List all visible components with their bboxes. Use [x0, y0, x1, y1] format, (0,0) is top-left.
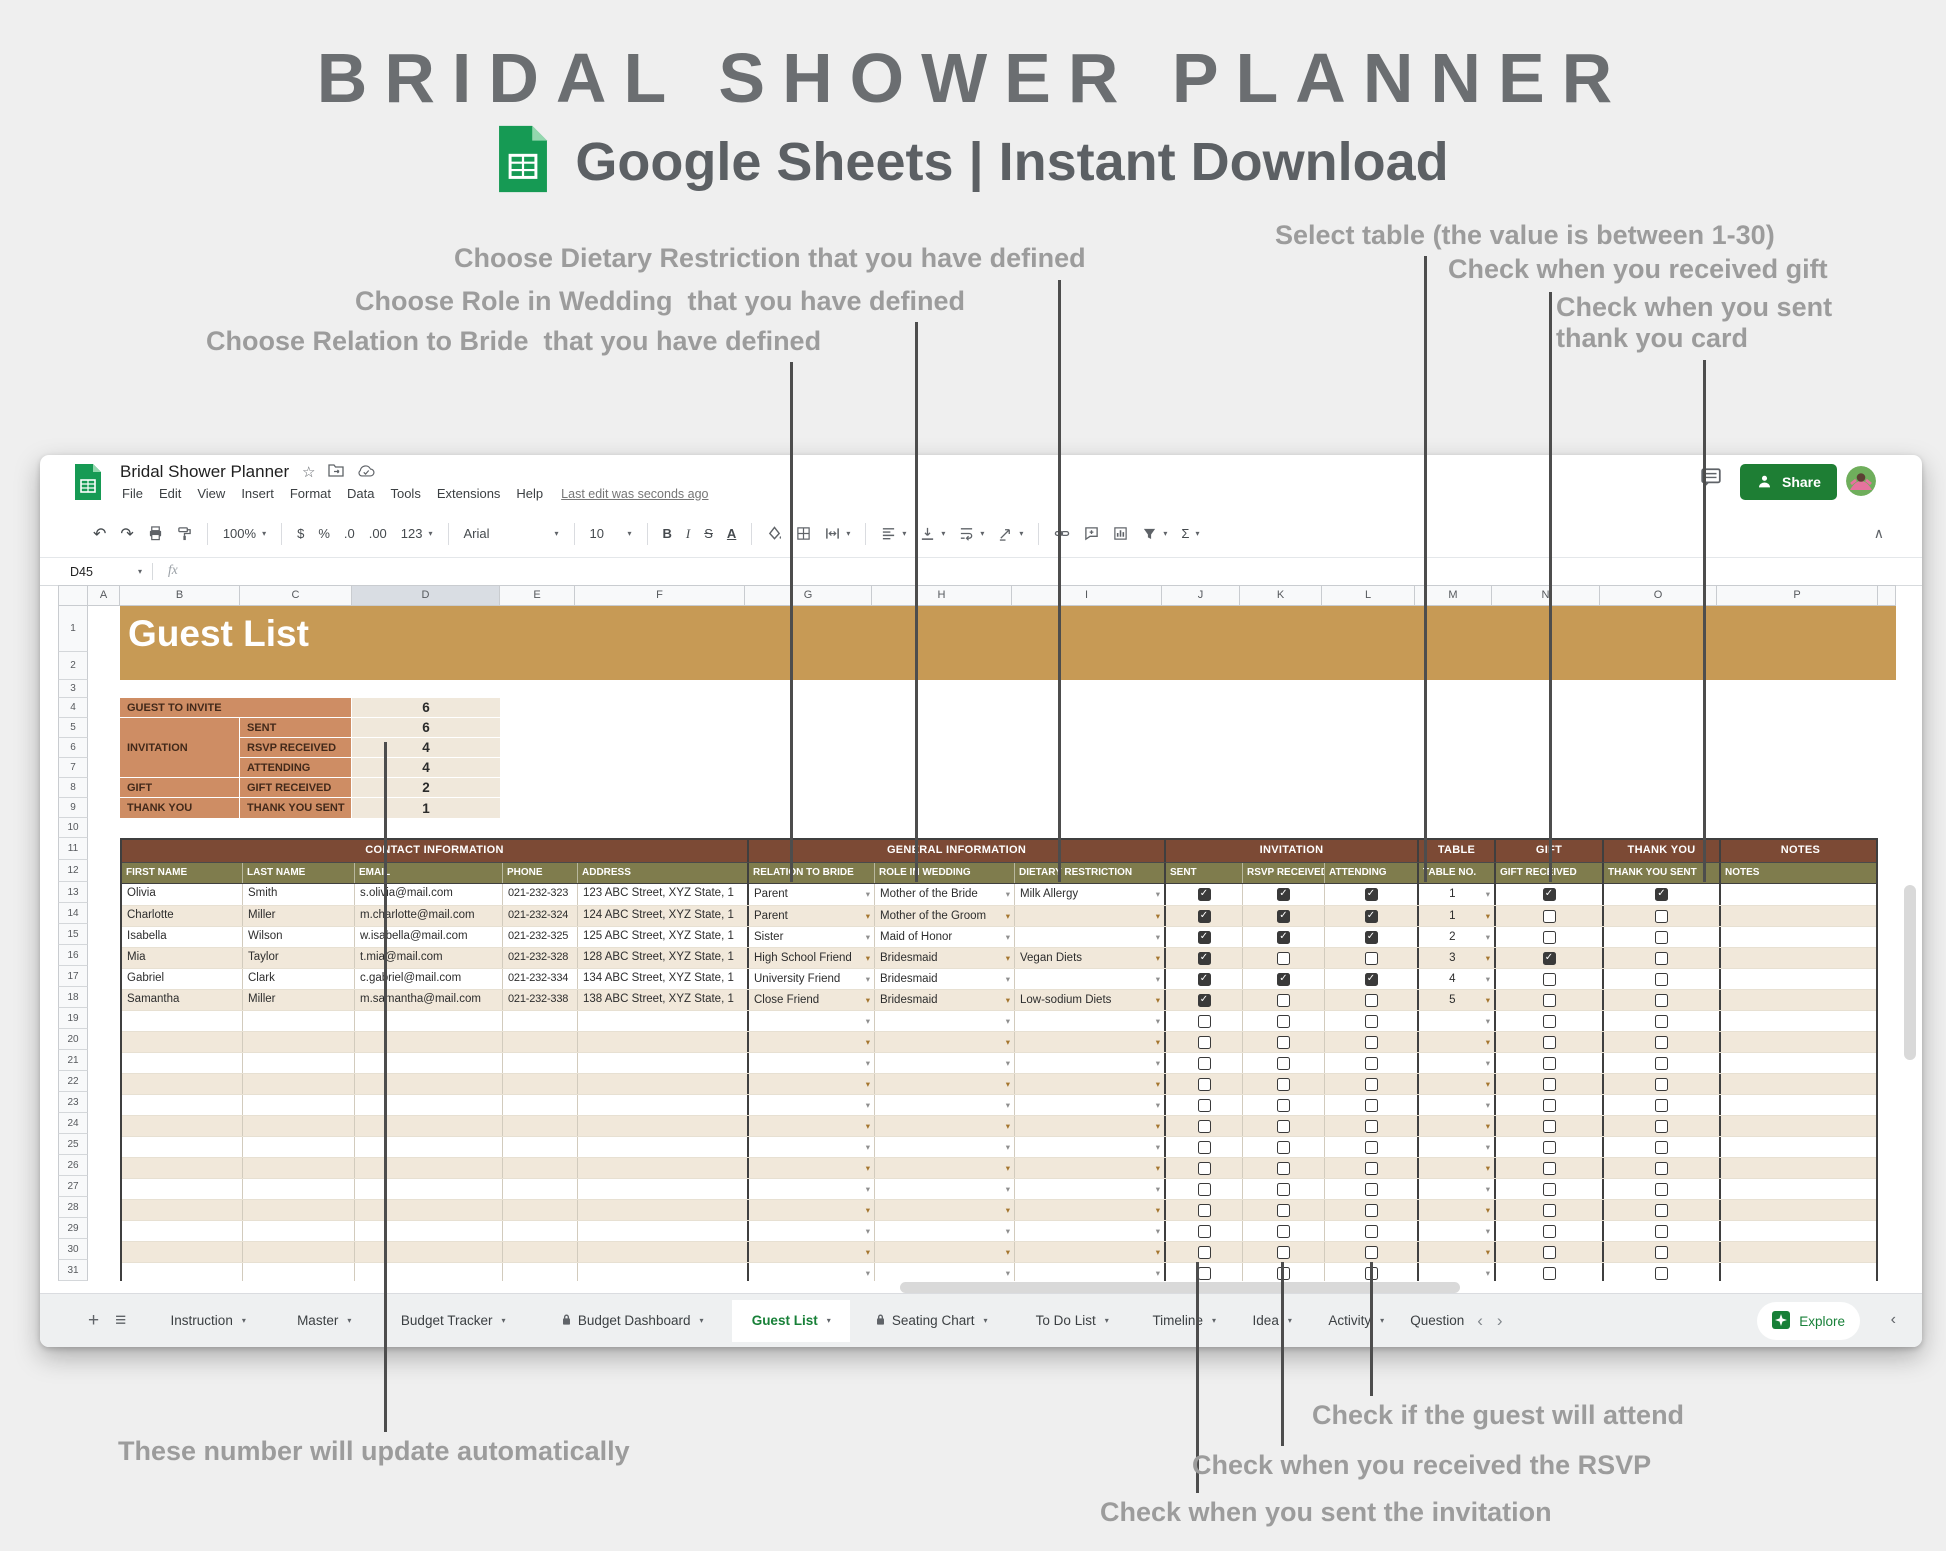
cell-sent[interactable]: [1164, 1053, 1242, 1073]
menu-item-data[interactable]: Data: [339, 484, 382, 503]
checkbox-sent[interactable]: [1198, 1120, 1211, 1133]
cell-phone[interactable]: 021-232-328: [502, 948, 577, 968]
checkbox-attending[interactable]: [1365, 994, 1378, 1007]
cell-attending[interactable]: [1324, 1158, 1417, 1178]
cell-rsvp-received[interactable]: [1242, 1158, 1324, 1178]
cell-first-name[interactable]: Charlotte: [122, 906, 242, 926]
cell-thank-you-sent[interactable]: [1602, 1242, 1719, 1262]
cell-thank-you-sent[interactable]: [1602, 1200, 1719, 1220]
column-header-A[interactable]: A: [88, 585, 120, 606]
cell-first-name[interactable]: [122, 1032, 242, 1052]
cell-role-in-wedding[interactable]: ▾: [874, 1095, 1014, 1115]
row-header-9[interactable]: 9: [58, 798, 88, 818]
horizontal-scrollbar[interactable]: [900, 1282, 1460, 1293]
cell-last-name[interactable]: Smith: [242, 884, 354, 905]
row-header-21[interactable]: 21: [58, 1050, 88, 1071]
menu-item-help[interactable]: Help: [508, 484, 551, 503]
cell-thank-you-sent[interactable]: [1602, 1032, 1719, 1052]
checkbox-thank-you-sent[interactable]: [1655, 1225, 1668, 1238]
cell-role-in-wedding[interactable]: ▾: [874, 1011, 1014, 1031]
cell-first-name[interactable]: [122, 1095, 242, 1115]
checkbox-sent[interactable]: [1198, 1078, 1211, 1091]
cell-attending[interactable]: ✓: [1324, 927, 1417, 947]
cell-sent[interactable]: [1164, 1137, 1242, 1157]
cell-sent[interactable]: ✓: [1164, 948, 1242, 968]
cell-sent[interactable]: ✓: [1164, 927, 1242, 947]
checkbox-rsvp-received[interactable]: [1277, 1183, 1290, 1196]
cell-last-name[interactable]: [242, 1116, 354, 1136]
cell-sent[interactable]: [1164, 1179, 1242, 1199]
cell-email[interactable]: [354, 1242, 502, 1262]
cell-address[interactable]: 138 ABC Street, XYZ State, 1: [577, 990, 747, 1010]
font-size-select[interactable]: 10▾: [590, 526, 632, 541]
row-header-19[interactable]: 19: [58, 1008, 88, 1029]
cell-table-no[interactable]: 1▾: [1417, 884, 1494, 905]
dropdown-arrow-icon[interactable]: ▾: [1156, 907, 1160, 926]
dropdown-arrow-icon[interactable]: ▾: [1156, 1075, 1160, 1094]
dropdown-arrow-icon[interactable]: ▾: [1156, 949, 1160, 968]
dropdown-arrow-icon[interactable]: ▾: [1156, 1243, 1160, 1262]
row-header-23[interactable]: 23: [58, 1092, 88, 1113]
grid-corner[interactable]: [58, 585, 88, 606]
checkbox-thank-you-sent[interactable]: [1655, 1036, 1668, 1049]
checkbox-gift-received[interactable]: [1543, 973, 1556, 986]
cell-dietary-restriction[interactable]: ▾: [1014, 1263, 1164, 1281]
cell-rsvp-received[interactable]: [1242, 1095, 1324, 1115]
summary-metric[interactable]: ATTENDING: [240, 758, 352, 778]
summary-value[interactable]: 4: [352, 738, 501, 758]
column-header-I[interactable]: I: [1012, 585, 1162, 606]
cell-gift-received[interactable]: [1494, 1221, 1602, 1241]
cell-thank-you-sent[interactable]: [1602, 969, 1719, 989]
dropdown-arrow-icon[interactable]: ▾: [1486, 1012, 1490, 1031]
row-header-1[interactable]: 1: [58, 606, 88, 652]
cell-relation-to-bride[interactable]: Parent▾: [747, 884, 874, 905]
cell-table-no[interactable]: ▾: [1417, 1074, 1494, 1094]
all-sheets-button[interactable]: ≡: [115, 1310, 126, 1332]
checkbox-attending[interactable]: [1365, 1162, 1378, 1175]
row-header-29[interactable]: 29: [58, 1218, 88, 1239]
cell-notes[interactable]: [1719, 1200, 1876, 1220]
checkbox-gift-received[interactable]: [1543, 1183, 1556, 1196]
cell-relation-to-bride[interactable]: ▾: [747, 1074, 874, 1094]
cell-phone[interactable]: 021-232-323: [502, 884, 577, 905]
cell-address[interactable]: [577, 1242, 747, 1262]
checkbox-sent[interactable]: [1198, 1057, 1211, 1070]
cell-rsvp-received[interactable]: [1242, 1221, 1324, 1241]
cell-last-name[interactable]: [242, 1011, 354, 1031]
cell-notes[interactable]: [1719, 1158, 1876, 1178]
cell-address[interactable]: 134 ABC Street, XYZ State, 1: [577, 969, 747, 989]
cell-phone[interactable]: [502, 1221, 577, 1241]
dropdown-arrow-icon[interactable]: ▾: [1156, 928, 1160, 947]
cell-table-no[interactable]: 5▾: [1417, 990, 1494, 1010]
row-header-22[interactable]: 22: [58, 1071, 88, 1092]
cell-last-name[interactable]: Miller: [242, 906, 354, 926]
cell-relation-to-bride[interactable]: ▾: [747, 1095, 874, 1115]
cell-sent[interactable]: [1164, 1116, 1242, 1136]
row-header-15[interactable]: 15: [58, 924, 88, 945]
dropdown-arrow-icon[interactable]: ▾: [1006, 1180, 1010, 1199]
dropdown-arrow-icon[interactable]: ▾: [866, 1075, 870, 1094]
row-header-14[interactable]: 14: [58, 903, 88, 924]
row-header-5[interactable]: 5: [58, 718, 88, 738]
checkbox-attending[interactable]: [1365, 1120, 1378, 1133]
cell-thank-you-sent[interactable]: [1602, 906, 1719, 926]
tab-menu-arrow-icon[interactable]: ▾: [1212, 1316, 1216, 1325]
tabs-scroll-right-icon[interactable]: ›: [1497, 1311, 1503, 1331]
cell-relation-to-bride[interactable]: ▾: [747, 1263, 874, 1281]
checkbox-attending[interactable]: [1365, 952, 1378, 965]
column-header-last-name[interactable]: LAST NAME: [242, 863, 354, 883]
checkbox-sent[interactable]: [1198, 1246, 1211, 1259]
column-header-N[interactable]: N: [1492, 585, 1600, 606]
column-header-D[interactable]: D: [352, 585, 500, 606]
group-header-contact-information[interactable]: CONTACT INFORMATION: [122, 840, 747, 862]
tab-activity[interactable]: Activity▾: [1308, 1300, 1404, 1342]
cell-attending[interactable]: [1324, 1200, 1417, 1220]
summary-category[interactable]: INVITATION: [120, 718, 240, 778]
column-header-L[interactable]: L: [1322, 585, 1415, 606]
cell-last-name[interactable]: [242, 1158, 354, 1178]
cell-attending[interactable]: [1324, 1032, 1417, 1052]
cell-role-in-wedding[interactable]: ▾: [874, 1158, 1014, 1178]
cell-thank-you-sent[interactable]: [1602, 1221, 1719, 1241]
column-header-dietary-restriction[interactable]: DIETARY RESTRICTION: [1014, 863, 1164, 883]
column-header-O[interactable]: O: [1600, 585, 1717, 606]
menu-item-insert[interactable]: Insert: [233, 484, 282, 503]
cell-last-name[interactable]: Wilson: [242, 927, 354, 947]
checkbox-thank-you-sent[interactable]: [1655, 1141, 1668, 1154]
cell-last-name[interactable]: [242, 1263, 354, 1281]
cell-email[interactable]: [354, 1221, 502, 1241]
menu-item-extensions[interactable]: Extensions: [429, 484, 509, 503]
summary-metric[interactable]: RSVP RECEIVED: [240, 738, 352, 758]
group-header-invitation[interactable]: INVITATION: [1164, 840, 1417, 862]
cell-sent[interactable]: [1164, 1095, 1242, 1115]
cell-first-name[interactable]: Gabriel: [122, 969, 242, 989]
checkbox-gift-received[interactable]: [1543, 1246, 1556, 1259]
cell-table-no[interactable]: 4▾: [1417, 969, 1494, 989]
cell-first-name[interactable]: [122, 1221, 242, 1241]
dropdown-arrow-icon[interactable]: ▾: [1486, 949, 1490, 968]
checkbox-sent[interactable]: ✓: [1198, 973, 1211, 986]
dropdown-arrow-icon[interactable]: ▾: [1486, 885, 1490, 904]
dropdown-arrow-icon[interactable]: ▾: [1006, 949, 1010, 968]
cell-address[interactable]: [577, 1179, 747, 1199]
cell-thank-you-sent[interactable]: [1602, 990, 1719, 1010]
cell-dietary-restriction[interactable]: ▾: [1014, 969, 1164, 989]
row-header-16[interactable]: 16: [58, 945, 88, 966]
dropdown-arrow-icon[interactable]: ▾: [866, 1222, 870, 1241]
checkbox-attending[interactable]: ✓: [1365, 910, 1378, 923]
tab-idea[interactable]: Idea▾: [1236, 1300, 1308, 1342]
column-header-H[interactable]: H: [872, 585, 1012, 606]
cell-thank-you-sent[interactable]: [1602, 948, 1719, 968]
cell-phone[interactable]: [502, 1116, 577, 1136]
checkbox-rsvp-received[interactable]: [1277, 1057, 1290, 1070]
cell-relation-to-bride[interactable]: ▾: [747, 1158, 874, 1178]
cell-attending[interactable]: [1324, 990, 1417, 1010]
checkbox-thank-you-sent[interactable]: [1655, 1057, 1668, 1070]
cell-notes[interactable]: [1719, 990, 1876, 1010]
cell-first-name[interactable]: [122, 1263, 242, 1281]
cell-phone[interactable]: [502, 1242, 577, 1262]
cell-rsvp-received[interactable]: [1242, 1074, 1324, 1094]
cell-address[interactable]: [577, 1221, 747, 1241]
cell-relation-to-bride[interactable]: High School Friend▾: [747, 948, 874, 968]
cell-last-name[interactable]: [242, 1200, 354, 1220]
dropdown-arrow-icon[interactable]: ▾: [1486, 970, 1490, 989]
cell-rsvp-received[interactable]: [1242, 948, 1324, 968]
cell-role-in-wedding[interactable]: ▾: [874, 1032, 1014, 1052]
cell-table-no[interactable]: 1▾: [1417, 906, 1494, 926]
dropdown-arrow-icon[interactable]: ▾: [1486, 1201, 1490, 1220]
summary-category[interactable]: THANK YOU: [120, 798, 240, 819]
cell-thank-you-sent[interactable]: ✓: [1602, 884, 1719, 905]
dropdown-arrow-icon[interactable]: ▾: [1156, 1033, 1160, 1052]
dropdown-arrow-icon[interactable]: ▾: [1156, 1138, 1160, 1157]
cell-last-name[interactable]: [242, 1179, 354, 1199]
tab-menu-arrow-icon[interactable]: ▾: [501, 1316, 505, 1325]
checkbox-sent[interactable]: [1198, 1204, 1211, 1217]
cell-table-no[interactable]: ▾: [1417, 1200, 1494, 1220]
checkbox-attending[interactable]: ✓: [1365, 888, 1378, 901]
checkbox-gift-received[interactable]: [1543, 1267, 1556, 1280]
dropdown-arrow-icon[interactable]: ▾: [866, 1054, 870, 1073]
cell-email[interactable]: [354, 1095, 502, 1115]
cell-attending[interactable]: [1324, 1053, 1417, 1073]
cell-attending[interactable]: [1324, 1221, 1417, 1241]
cell-attending[interactable]: [1324, 1179, 1417, 1199]
cell-table-no[interactable]: ▾: [1417, 1032, 1494, 1052]
dropdown-arrow-icon[interactable]: ▾: [1486, 1117, 1490, 1136]
dropdown-arrow-icon[interactable]: ▾: [1156, 991, 1160, 1010]
dropdown-arrow-icon[interactable]: ▾: [1006, 1096, 1010, 1115]
checkbox-sent[interactable]: ✓: [1198, 994, 1211, 1007]
checkbox-sent[interactable]: [1198, 1162, 1211, 1175]
checkbox-rsvp-received[interactable]: [1277, 1078, 1290, 1091]
checkbox-gift-received[interactable]: [1543, 1078, 1556, 1091]
cell-sent[interactable]: ✓: [1164, 990, 1242, 1010]
decrease-decimals-button[interactable]: .0: [344, 526, 355, 541]
cell-dietary-restriction[interactable]: ▾: [1014, 1242, 1164, 1262]
tab-timeline[interactable]: Timeline▾: [1132, 1300, 1236, 1342]
cell-rsvp-received[interactable]: ✓: [1242, 927, 1324, 947]
checkbox-sent[interactable]: [1198, 1225, 1211, 1238]
dropdown-arrow-icon[interactable]: ▾: [1156, 885, 1160, 904]
cell-address[interactable]: [577, 1053, 747, 1073]
row-header-4[interactable]: 4: [58, 698, 88, 718]
cell-email[interactable]: t.mia@mail.com: [354, 948, 502, 968]
cell-last-name[interactable]: [242, 1242, 354, 1262]
column-header-thank-you-sent[interactable]: THANK YOU SENT: [1602, 863, 1719, 883]
cell-address[interactable]: [577, 1074, 747, 1094]
checkbox-rsvp-received[interactable]: ✓: [1277, 910, 1290, 923]
checkbox-thank-you-sent[interactable]: [1655, 952, 1668, 965]
dropdown-arrow-icon[interactable]: ▾: [1006, 1264, 1010, 1282]
cell-rsvp-received[interactable]: [1242, 1200, 1324, 1220]
cell-gift-received[interactable]: [1494, 1242, 1602, 1262]
cell-notes[interactable]: [1719, 1032, 1876, 1052]
row-header-11[interactable]: 11: [58, 838, 88, 860]
cell-rsvp-received[interactable]: [1242, 1053, 1324, 1073]
cell-address[interactable]: [577, 1137, 747, 1157]
cell-first-name[interactable]: Olivia: [122, 884, 242, 905]
checkbox-gift-received[interactable]: [1543, 1057, 1556, 1070]
checkbox-rsvp-received[interactable]: [1277, 1015, 1290, 1028]
cell-role-in-wedding[interactable]: ▾: [874, 1116, 1014, 1136]
group-header-general-information[interactable]: GENERAL INFORMATION: [747, 840, 1164, 862]
strikethrough-button[interactable]: S: [704, 526, 713, 541]
summary-value[interactable]: 2: [352, 778, 501, 798]
checkbox-sent[interactable]: ✓: [1198, 952, 1211, 965]
tab-seating-chart[interactable]: Seating Chart▾: [850, 1300, 1012, 1342]
dropdown-arrow-icon[interactable]: ▾: [1156, 1264, 1160, 1282]
cell-rsvp-received[interactable]: ✓: [1242, 969, 1324, 989]
cell-relation-to-bride[interactable]: University Friend▾: [747, 969, 874, 989]
cell-relation-to-bride[interactable]: Sister▾: [747, 927, 874, 947]
cell-role-in-wedding[interactable]: ▾: [874, 1137, 1014, 1157]
dropdown-arrow-icon[interactable]: ▾: [866, 1033, 870, 1052]
vertical-scrollbar[interactable]: [1904, 885, 1916, 1060]
format-percent-button[interactable]: %: [318, 526, 330, 541]
dropdown-arrow-icon[interactable]: ▾: [1006, 1138, 1010, 1157]
cell-attending[interactable]: [1324, 1011, 1417, 1031]
cell-relation-to-bride[interactable]: ▾: [747, 1137, 874, 1157]
checkbox-sent[interactable]: ✓: [1198, 910, 1211, 923]
cell-email[interactable]: s.olivia@mail.com: [354, 884, 502, 905]
cell-table-no[interactable]: ▾: [1417, 1095, 1494, 1115]
cell-gift-received[interactable]: [1494, 990, 1602, 1010]
cell-sent[interactable]: [1164, 1011, 1242, 1031]
account-avatar[interactable]: [1846, 466, 1876, 496]
cell-sent[interactable]: [1164, 1200, 1242, 1220]
cell-dietary-restriction[interactable]: ▾: [1014, 1221, 1164, 1241]
tab-menu-arrow-icon[interactable]: ▾: [347, 1316, 351, 1325]
checkbox-sent[interactable]: ✓: [1198, 888, 1211, 901]
cell-first-name[interactable]: [122, 1053, 242, 1073]
cell-sent[interactable]: [1164, 1158, 1242, 1178]
text-rotation-icon[interactable]: ▾: [998, 526, 1023, 541]
filter-icon[interactable]: ▾: [1142, 526, 1167, 541]
sheet-banner[interactable]: Guest List: [120, 606, 1896, 680]
row-header-25[interactable]: 25: [58, 1134, 88, 1155]
cell-last-name[interactable]: [242, 1137, 354, 1157]
star-icon[interactable]: ☆: [302, 463, 315, 481]
cell-table-no[interactable]: 2▾: [1417, 927, 1494, 947]
cell-role-in-wedding[interactable]: ▾: [874, 1200, 1014, 1220]
cell-dietary-restriction[interactable]: ▾: [1014, 1053, 1164, 1073]
cell-notes[interactable]: [1719, 884, 1876, 905]
tab-budget-dashboard[interactable]: Budget Dashboard▾: [532, 1300, 732, 1342]
checkbox-rsvp-received[interactable]: ✓: [1277, 931, 1290, 944]
cell-role-in-wedding[interactable]: ▾: [874, 1221, 1014, 1241]
column-header-E[interactable]: E: [500, 585, 575, 606]
cell-thank-you-sent[interactable]: [1602, 1053, 1719, 1073]
cell-dietary-restriction[interactable]: ▾: [1014, 927, 1164, 947]
cell-dietary-restriction[interactable]: ▾: [1014, 1137, 1164, 1157]
name-box[interactable]: D45▾: [58, 558, 150, 585]
tab-guest-list[interactable]: Guest List▾: [732, 1300, 850, 1342]
checkbox-gift-received[interactable]: [1543, 1036, 1556, 1049]
cell-email[interactable]: m.samantha@mail.com: [354, 990, 502, 1010]
cell-last-name[interactable]: [242, 1053, 354, 1073]
text-color-button[interactable]: A: [727, 526, 736, 541]
cell-email[interactable]: [354, 1263, 502, 1281]
merge-cells-icon[interactable]: ▾: [825, 526, 850, 541]
cell-email[interactable]: w.isabella@mail.com: [354, 927, 502, 947]
dropdown-arrow-icon[interactable]: ▾: [866, 1012, 870, 1031]
dropdown-arrow-icon[interactable]: ▾: [1006, 885, 1010, 904]
menu-item-format[interactable]: Format: [282, 484, 339, 503]
cell-email[interactable]: [354, 1116, 502, 1136]
cell-gift-received[interactable]: [1494, 1011, 1602, 1031]
collapse-tabbar-icon[interactable]: ‹: [1891, 1311, 1896, 1329]
checkbox-sent[interactable]: [1198, 1141, 1211, 1154]
checkbox-rsvp-received[interactable]: ✓: [1277, 888, 1290, 901]
dropdown-arrow-icon[interactable]: ▾: [1006, 1201, 1010, 1220]
cell-address[interactable]: 125 ABC Street, XYZ State, 1: [577, 927, 747, 947]
fill-color-icon[interactable]: [767, 526, 782, 541]
cell-rsvp-received[interactable]: ✓: [1242, 906, 1324, 926]
cell-rsvp-received[interactable]: [1242, 1116, 1324, 1136]
checkbox-thank-you-sent[interactable]: [1655, 931, 1668, 944]
cell-thank-you-sent[interactable]: [1602, 1137, 1719, 1157]
cell-role-in-wedding[interactable]: Maid of Honor▾: [874, 927, 1014, 947]
row-header-7[interactable]: 7: [58, 758, 88, 778]
cell-relation-to-bride[interactable]: ▾: [747, 1200, 874, 1220]
column-header-table-no[interactable]: TABLE NO.: [1417, 863, 1494, 883]
checkbox-attending[interactable]: ✓: [1365, 973, 1378, 986]
dropdown-arrow-icon[interactable]: ▾: [1006, 1054, 1010, 1073]
cell-thank-you-sent[interactable]: [1602, 1116, 1719, 1136]
cell-email[interactable]: [354, 1137, 502, 1157]
cell-phone[interactable]: 021-232-334: [502, 969, 577, 989]
row-header-20[interactable]: 20: [58, 1029, 88, 1050]
cell-attending[interactable]: ✓: [1324, 884, 1417, 905]
cell-notes[interactable]: [1719, 1263, 1876, 1281]
cell-sent[interactable]: ✓: [1164, 969, 1242, 989]
cell-phone[interactable]: [502, 1032, 577, 1052]
checkbox-attending[interactable]: [1365, 1204, 1378, 1217]
dropdown-arrow-icon[interactable]: ▾: [1156, 1054, 1160, 1073]
column-header-notes[interactable]: NOTES: [1719, 863, 1876, 883]
cell-role-in-wedding[interactable]: Bridesmaid▾: [874, 969, 1014, 989]
checkbox-rsvp-received[interactable]: ✓: [1277, 973, 1290, 986]
cell-notes[interactable]: [1719, 948, 1876, 968]
cell-email[interactable]: [354, 1053, 502, 1073]
cell-phone[interactable]: 021-232-325: [502, 927, 577, 947]
checkbox-rsvp-received[interactable]: [1277, 1099, 1290, 1112]
checkbox-thank-you-sent[interactable]: [1655, 1267, 1668, 1280]
cell-dietary-restriction[interactable]: ▾: [1014, 1179, 1164, 1199]
cell-notes[interactable]: [1719, 906, 1876, 926]
checkbox-gift-received[interactable]: [1543, 931, 1556, 944]
cell-address[interactable]: [577, 1158, 747, 1178]
tab-menu-arrow-icon[interactable]: ▾: [1380, 1316, 1384, 1325]
cell-relation-to-bride[interactable]: Close Friend▾: [747, 990, 874, 1010]
cell-email[interactable]: m.charlotte@mail.com: [354, 906, 502, 926]
dropdown-arrow-icon[interactable]: ▾: [866, 1159, 870, 1178]
checkbox-gift-received[interactable]: [1543, 1204, 1556, 1217]
dropdown-arrow-icon[interactable]: ▾: [866, 1264, 870, 1282]
checkbox-rsvp-received[interactable]: [1277, 1162, 1290, 1175]
dropdown-arrow-icon[interactable]: ▾: [866, 1096, 870, 1115]
group-header-thank-you[interactable]: THANK YOU: [1602, 840, 1719, 862]
dropdown-arrow-icon[interactable]: ▾: [1006, 1117, 1010, 1136]
cell-email[interactable]: [354, 1011, 502, 1031]
